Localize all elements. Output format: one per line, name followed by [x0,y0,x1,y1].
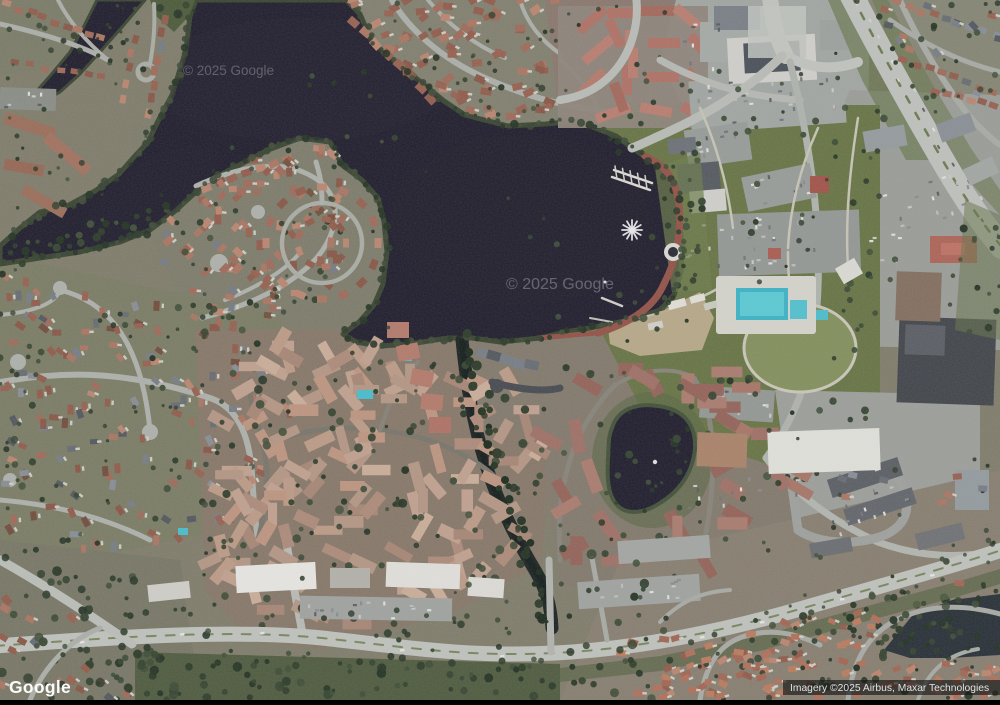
svg-text:© 2025 Google: © 2025 Google [183,63,274,78]
svg-text:Imagery ©2025 Airbus, Maxar Te: Imagery ©2025 Airbus, Maxar Technologies [790,683,989,694]
svg-text:Google: Google [9,677,71,697]
svg-text:© 2025 Google: © 2025 Google [506,276,614,293]
